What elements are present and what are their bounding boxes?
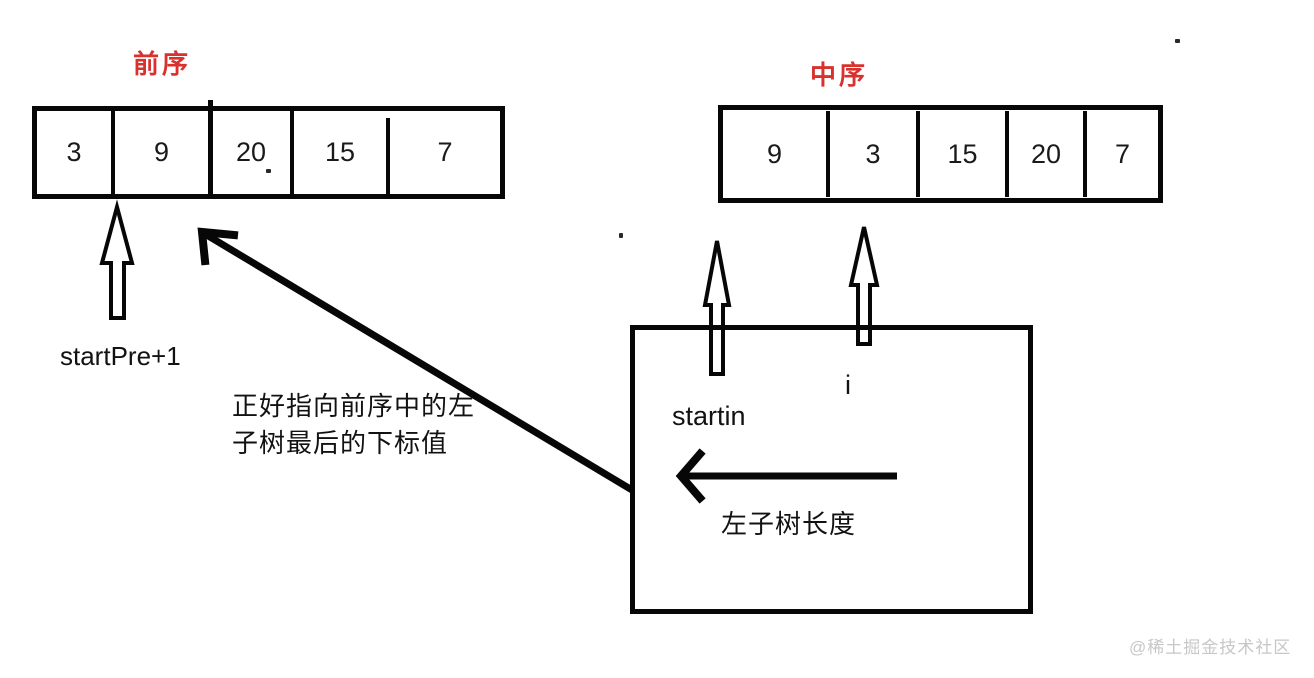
- ink-speck: [619, 233, 623, 238]
- start-pre-up-arrow-icon: [102, 207, 132, 318]
- inorder-cell: 3: [830, 110, 916, 198]
- watermark: @稀土掘金技术社区: [1129, 633, 1291, 658]
- start-pre-label: startPre+1: [60, 341, 181, 372]
- inorder-cell: 15: [920, 110, 1005, 198]
- index-range-box: [630, 325, 1033, 614]
- ink-speck: [1175, 39, 1180, 43]
- inorder-cell: 20: [1009, 110, 1083, 198]
- inorder-array: 9 3 15 20 7: [718, 105, 1163, 203]
- inorder-cell: 7: [1087, 110, 1158, 198]
- inorder-cell: 9: [723, 110, 826, 198]
- preorder-cell: 9: [115, 111, 208, 194]
- note-text-line2: 子树最后的下标值: [232, 423, 448, 460]
- preorder-title: 前序: [133, 44, 191, 81]
- left-subtree-length-label: 左子树长度: [721, 504, 856, 541]
- preorder-array: 3 9 20 15 7: [32, 106, 505, 199]
- note-text-line1: 正好指向前序中的左: [232, 386, 475, 423]
- startin-label: startin: [672, 401, 746, 432]
- preorder-cell: 7: [390, 111, 500, 194]
- inorder-title: 中序: [810, 55, 868, 92]
- preorder-cell: 15: [294, 111, 386, 194]
- ink-speck: [266, 169, 271, 173]
- whiteboard-diagram: 前序 中序 3 9 20 15 7 9 3 15 20 7: [0, 0, 1314, 678]
- preorder-cell: 20: [212, 111, 290, 194]
- i-label: i: [845, 370, 851, 401]
- preorder-cell: 3: [37, 111, 111, 194]
